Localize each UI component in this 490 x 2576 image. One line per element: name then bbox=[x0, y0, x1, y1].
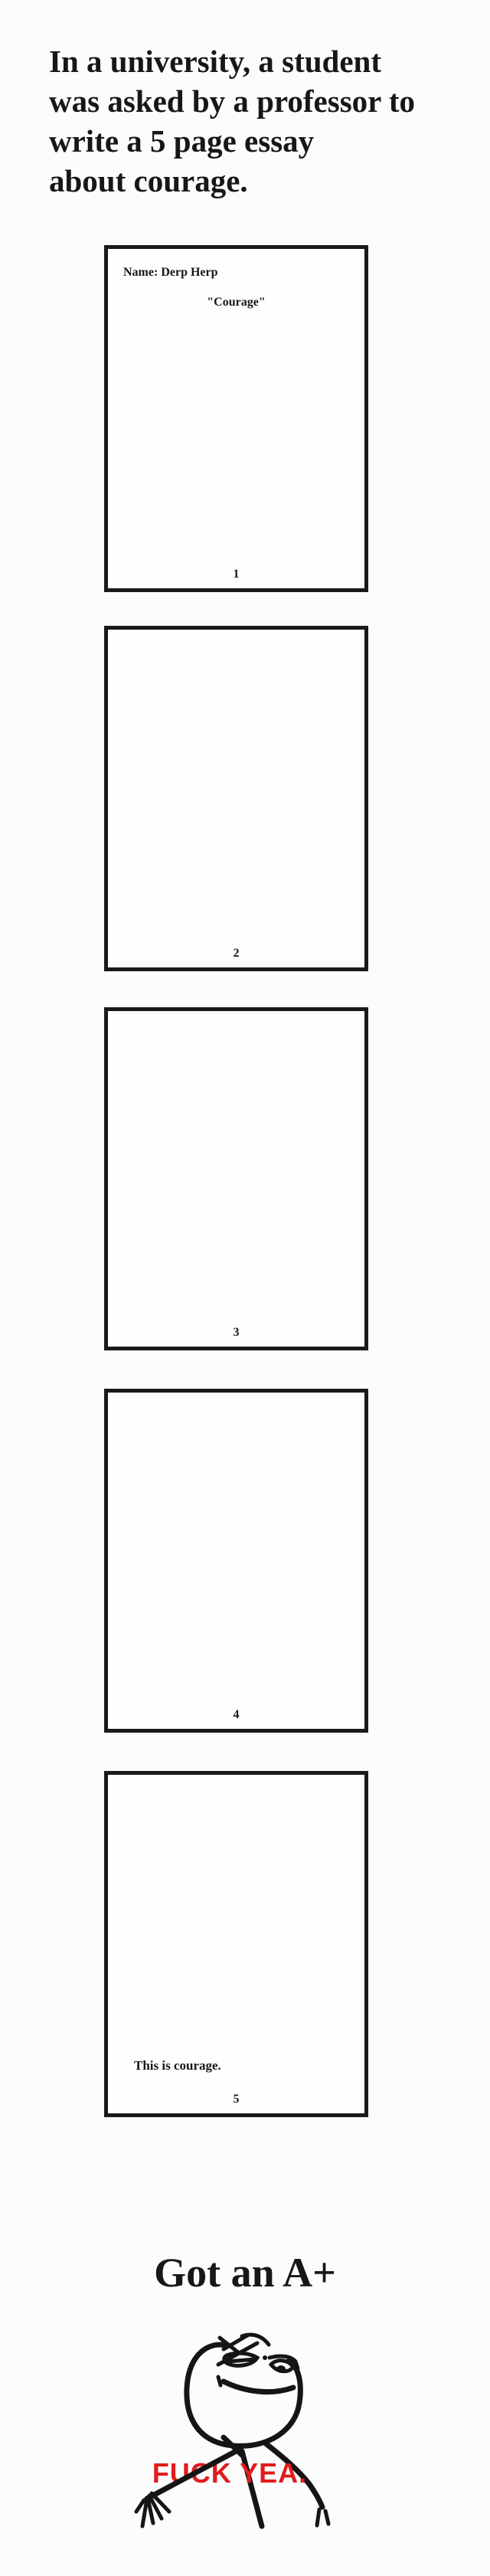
essay-title: "Courage" bbox=[108, 296, 364, 309]
rage-face-left-arm-icon bbox=[107, 2329, 352, 2551]
essay-page-3: 3 bbox=[104, 1007, 368, 1350]
essay-page-2: 2 bbox=[104, 626, 368, 971]
page-number: 2 bbox=[108, 946, 364, 961]
essay-page-5: This is courage. 5 bbox=[104, 1771, 368, 2117]
page-number: 5 bbox=[108, 2092, 364, 2106]
meme-comic: In a university, a student was asked by … bbox=[0, 0, 490, 2576]
page-number: 4 bbox=[108, 1707, 364, 1722]
essay-name-header: Name: Derp Herp bbox=[123, 266, 218, 280]
intro-caption-line: In a university, a student bbox=[49, 41, 415, 81]
intro-caption: In a university, a student was asked by … bbox=[49, 41, 415, 201]
essay-page-1: Name: Derp Herp "Courage" 1 bbox=[104, 245, 368, 592]
intro-caption-line: was asked by a professor to bbox=[49, 81, 415, 121]
closing-line: This is courage. bbox=[134, 2058, 221, 2074]
intro-caption-line: about courage. bbox=[49, 161, 415, 201]
result-caption: Got an A+ bbox=[0, 2250, 490, 2296]
page-number: 3 bbox=[108, 1325, 364, 1340]
intro-caption-line: write a 5 page essay bbox=[49, 121, 415, 161]
page-number: 1 bbox=[108, 567, 364, 581]
essay-page-4: 4 bbox=[104, 1389, 368, 1733]
